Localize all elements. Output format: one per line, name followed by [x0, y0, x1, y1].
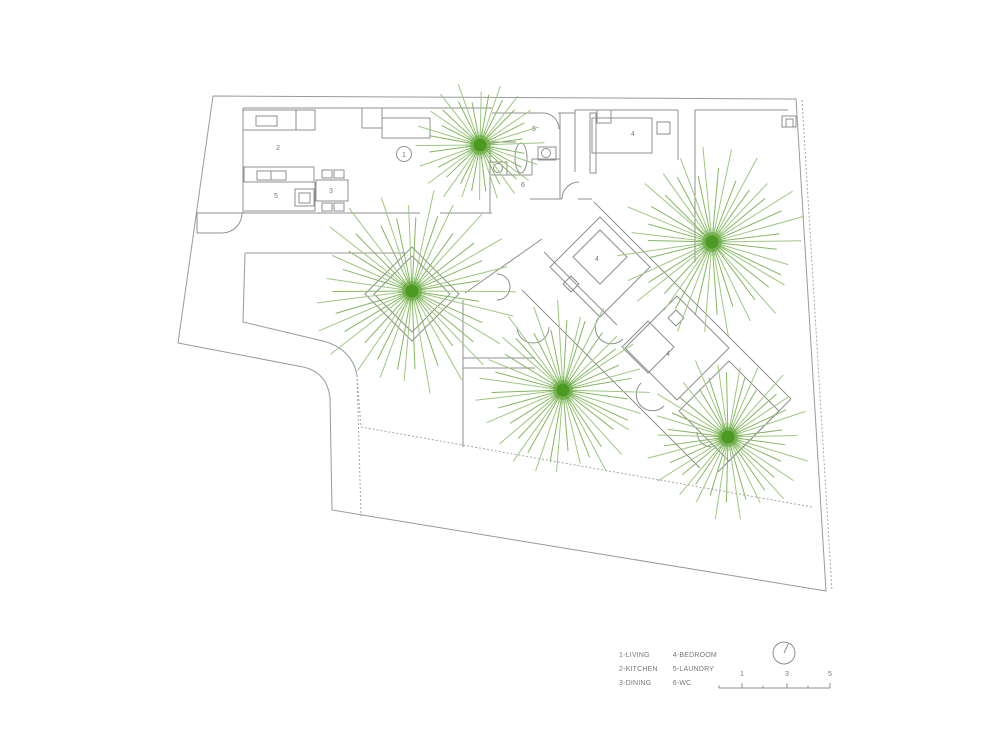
- furniture-rect: [597, 110, 611, 123]
- trees-layer: [317, 84, 808, 519]
- tree-ray: [499, 392, 560, 444]
- tree-ray: [415, 292, 513, 316]
- tree-trunk-dot: [474, 139, 487, 152]
- rotated-room-outline: [622, 321, 674, 373]
- tree-ray: [645, 183, 710, 240]
- legend-item-living: 1-LIVING: [619, 649, 658, 663]
- tree-ray: [332, 291, 409, 292]
- tree-ray: [730, 375, 783, 435]
- tree-ray: [565, 336, 617, 388]
- floor-plan-drawing: 253166444: [0, 0, 1000, 747]
- wall-line: [465, 239, 542, 293]
- tree-trunk-dot: [722, 431, 735, 444]
- tree-icon: [475, 300, 649, 472]
- tree-ray: [508, 317, 561, 388]
- legend-item-laundry: 5-LAUNDRY: [673, 663, 717, 677]
- tree-ray: [663, 174, 710, 240]
- furniture-rect: [296, 110, 315, 130]
- furniture-rect: [334, 170, 344, 178]
- room-legend: 1-LIVING 2-KITCHEN 3-DINING 4-BEDROOM 5-…: [619, 649, 717, 691]
- room-number-label: 4: [631, 131, 635, 138]
- scale-label-3: 3: [782, 671, 792, 678]
- room-number-label: 5: [274, 193, 278, 200]
- tree-ray: [331, 293, 410, 354]
- tree-ray: [714, 244, 776, 313]
- tree-ray: [564, 308, 603, 387]
- legend-item-dining: 3-DINING: [619, 677, 658, 691]
- fixture-circle: [542, 149, 551, 158]
- site-boundary-layer: [178, 96, 832, 591]
- room-number-label: 6: [521, 182, 525, 189]
- furniture-rect: [243, 110, 315, 130]
- tree-ray: [404, 294, 412, 381]
- tree-ray: [713, 150, 732, 239]
- tree-ray: [414, 214, 482, 289]
- room-number-label: 6: [532, 126, 536, 133]
- furniture-rect: [590, 113, 596, 173]
- north-indicator: [773, 642, 795, 664]
- furniture-rect: [257, 171, 271, 180]
- tree-ray: [715, 244, 785, 285]
- room-number-label: 4: [595, 256, 599, 263]
- tree-ray: [703, 147, 712, 239]
- tree-ray: [715, 440, 727, 519]
- door-swing-arc: [636, 383, 664, 411]
- furniture-rect: [782, 116, 796, 127]
- tree-icon: [317, 190, 516, 393]
- furniture-layer: [243, 108, 796, 211]
- scale-bar: [719, 683, 830, 688]
- setback-dashed-line: [802, 100, 832, 591]
- door-swing-arc: [222, 213, 242, 233]
- tree-ray: [513, 392, 561, 461]
- room-number-label: 4: [666, 351, 670, 358]
- door-swing-arc: [562, 182, 579, 199]
- tree-ray: [628, 207, 710, 241]
- scale-label-1: 1: [737, 671, 747, 678]
- tree-ray: [502, 337, 560, 388]
- door-swing-arc: [595, 316, 623, 344]
- tree-ray: [336, 292, 409, 314]
- wall-line: [594, 202, 791, 399]
- tree-ray: [731, 411, 806, 436]
- tree-ray: [330, 227, 410, 289]
- furniture-rect: [334, 203, 344, 211]
- legend-column-1: 1-LIVING 2-KITCHEN 3-DINING: [619, 649, 658, 691]
- door-swing-arc: [497, 274, 510, 300]
- furniture-rect: [271, 171, 286, 180]
- legend-item-wc: 6-WC: [673, 677, 717, 691]
- room-number-label: 3: [329, 188, 333, 195]
- room-number-label: 1: [402, 152, 406, 159]
- tree-ray: [715, 241, 801, 242]
- furniture-rect: [786, 119, 793, 127]
- north-hand: [784, 644, 789, 654]
- legend-column-2: 4-BEDROOM 5-LAUNDRY 6-WC: [673, 649, 717, 691]
- door-swing-arc: [543, 113, 559, 129]
- legend-item-kitchen: 2-KITCHEN: [619, 663, 658, 677]
- tree-icon: [617, 147, 804, 337]
- setback-dashed-line: [357, 375, 812, 507]
- furniture-rect: [256, 116, 277, 126]
- terrace-edge: [243, 253, 357, 375]
- rotated-room-outline: [668, 310, 684, 326]
- tree-ray: [681, 158, 711, 239]
- tree-ray: [564, 393, 606, 471]
- legend-item-bedroom: 4-BEDROOM: [673, 649, 717, 663]
- rotated-room-outline: [550, 217, 650, 317]
- tree-ray: [637, 244, 710, 301]
- walls-layer: [197, 108, 791, 472]
- furniture-rect: [362, 108, 382, 128]
- furniture-rect: [657, 122, 670, 134]
- tree-ray: [413, 190, 434, 288]
- tree-trunk-dot: [406, 285, 419, 298]
- tree-ray: [415, 291, 516, 292]
- furniture-rect: [299, 193, 310, 203]
- wall-line: [544, 252, 617, 325]
- rotated-room-outline: [573, 230, 627, 284]
- scale-label-5: 5: [825, 671, 835, 678]
- furniture-rect: [322, 203, 332, 211]
- floor-plan-page: 253166444 1-LIVING 2-KITCHEN 3-DINING 4-…: [0, 0, 1000, 747]
- tree-icon: [416, 84, 545, 200]
- room-number-label: 2: [276, 145, 280, 152]
- tree-ray: [487, 391, 561, 423]
- furniture-rect: [322, 170, 332, 178]
- tree-trunk-dot: [557, 384, 570, 397]
- tree-ray: [565, 392, 622, 454]
- tree-trunk-dot: [706, 236, 719, 249]
- tree-ray: [413, 294, 431, 393]
